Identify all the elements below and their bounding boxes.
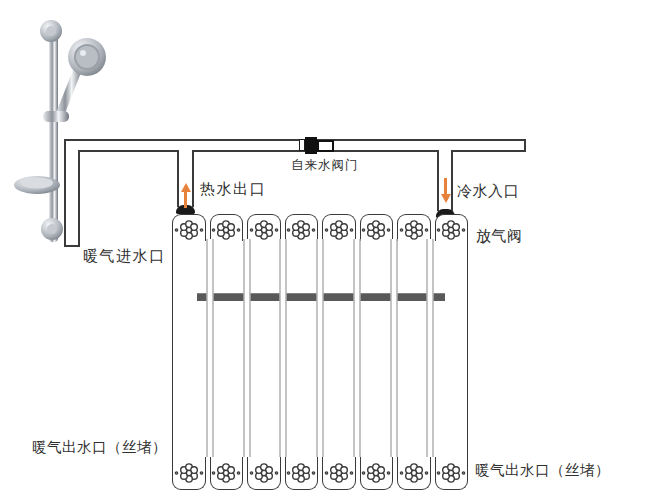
main-pipe-top-line bbox=[64, 139, 526, 141]
radiator-tube bbox=[243, 239, 250, 457]
radiator-section-top bbox=[435, 214, 469, 241]
flower-ornament-icon bbox=[436, 218, 466, 242]
flower-ornament-icon bbox=[211, 218, 241, 242]
flower-ornament-icon bbox=[399, 461, 429, 485]
radiator-tube bbox=[280, 239, 287, 457]
flower-ornament-icon bbox=[211, 461, 241, 485]
label-cold-water-inlet: 冷水入口 bbox=[457, 182, 519, 201]
flower-ornament-icon bbox=[324, 218, 354, 242]
cold-flow-down-arrow-icon bbox=[440, 178, 451, 203]
radiator-tube bbox=[317, 239, 324, 457]
label-heating-inlet: 暖气进水口 bbox=[83, 247, 166, 266]
radiator-section-bottom bbox=[172, 457, 206, 490]
radiator-section-bottom bbox=[210, 457, 244, 490]
flower-ornament-icon bbox=[324, 461, 354, 485]
radiator-bottom-row bbox=[172, 457, 468, 490]
radiator-section-bottom bbox=[435, 457, 469, 490]
radiator-section-top bbox=[360, 214, 394, 241]
radiator-tube bbox=[390, 239, 397, 457]
shower-head-icon bbox=[68, 38, 106, 76]
main-pipe-bottom-line-1 bbox=[78, 150, 178, 152]
hot-riser-right bbox=[192, 150, 194, 207]
tap-valve-icon bbox=[305, 137, 317, 154]
flower-ornament-icon bbox=[286, 461, 316, 485]
plumbing-diagram: 自来水阀门 热水出口 冷水入口 暖气进水口 放气阀 暖气出水口（丝堵） 暖气出水… bbox=[0, 0, 655, 499]
radiator-section-top bbox=[322, 214, 356, 241]
radiator-body bbox=[172, 241, 468, 457]
radiator-section-bottom bbox=[247, 457, 281, 490]
hot-flow-up-arrow-icon bbox=[180, 183, 191, 208]
left-downpipe-outer bbox=[64, 139, 66, 247]
shower-rail bbox=[40, 20, 63, 242]
radiator-section-top bbox=[247, 214, 281, 241]
radiator-section-top bbox=[210, 214, 244, 241]
radiator-tube bbox=[206, 239, 213, 457]
radiator-tube bbox=[353, 239, 360, 457]
radiator-section-top bbox=[397, 214, 431, 241]
left-downpipe-cap bbox=[64, 245, 80, 247]
cold-riser-right bbox=[451, 150, 453, 211]
main-pipe-end-cap bbox=[524, 139, 526, 152]
radiator bbox=[172, 214, 468, 490]
label-heating-outlet-right: 暖气出水口（丝堵） bbox=[475, 461, 610, 480]
radiator-section-bottom bbox=[285, 457, 319, 490]
soap-dish bbox=[14, 176, 60, 194]
radiator-section-top bbox=[285, 214, 319, 241]
flower-ornament-icon bbox=[249, 218, 279, 242]
left-downpipe-inner bbox=[78, 150, 80, 247]
tap-valve-body bbox=[317, 140, 334, 152]
radiator-section-bottom bbox=[360, 457, 394, 490]
radiator-top-row bbox=[172, 214, 468, 241]
main-pipe-bottom-line-3 bbox=[452, 150, 526, 152]
flower-ornament-icon bbox=[399, 218, 429, 242]
radiator-section-top bbox=[172, 214, 206, 241]
flower-ornament-icon bbox=[174, 461, 204, 485]
radiator-tube bbox=[427, 239, 434, 457]
flower-ornament-icon bbox=[361, 218, 391, 242]
label-heating-outlet-left: 暖气出水口（丝堵） bbox=[32, 438, 167, 457]
flower-ornament-icon bbox=[436, 461, 466, 485]
flower-ornament-icon bbox=[286, 218, 316, 242]
shower-handle bbox=[43, 65, 82, 122]
label-air-release-valve: 放气阀 bbox=[476, 227, 523, 246]
radiator-section-bottom bbox=[397, 457, 431, 490]
cold-riser-left bbox=[437, 150, 439, 211]
flower-ornament-icon bbox=[174, 218, 204, 242]
label-hot-water-outlet: 热水出口 bbox=[200, 180, 266, 199]
label-tap-water-valve: 自来水阀门 bbox=[291, 157, 359, 174]
radiator-section-bottom bbox=[322, 457, 356, 490]
flower-ornament-icon bbox=[249, 461, 279, 485]
flower-ornament-icon bbox=[361, 461, 391, 485]
hot-riser-left bbox=[177, 150, 179, 207]
